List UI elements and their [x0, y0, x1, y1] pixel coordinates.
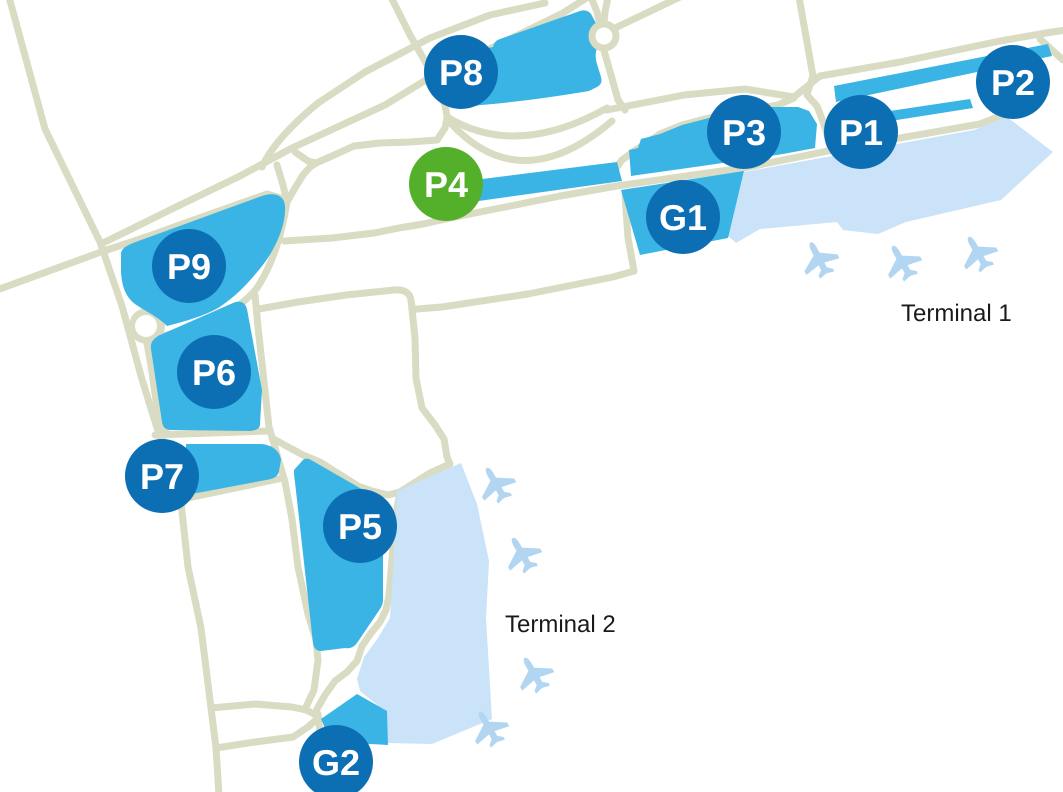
svg-text:P1: P1: [839, 112, 883, 153]
svg-text:Terminal 1: Terminal 1: [901, 300, 1012, 327]
svg-text:P9: P9: [167, 246, 211, 287]
svg-text:P7: P7: [140, 456, 184, 497]
svg-text:P4: P4: [424, 164, 468, 205]
svg-text:G2: G2: [312, 742, 360, 783]
svg-text:P2: P2: [991, 62, 1035, 103]
svg-text:P8: P8: [439, 52, 483, 93]
svg-text:Terminal 2: Terminal 2: [505, 611, 616, 638]
svg-text:G1: G1: [659, 197, 707, 238]
svg-text:P3: P3: [722, 112, 766, 153]
svg-text:P5: P5: [338, 506, 382, 547]
svg-text:P6: P6: [192, 352, 236, 393]
